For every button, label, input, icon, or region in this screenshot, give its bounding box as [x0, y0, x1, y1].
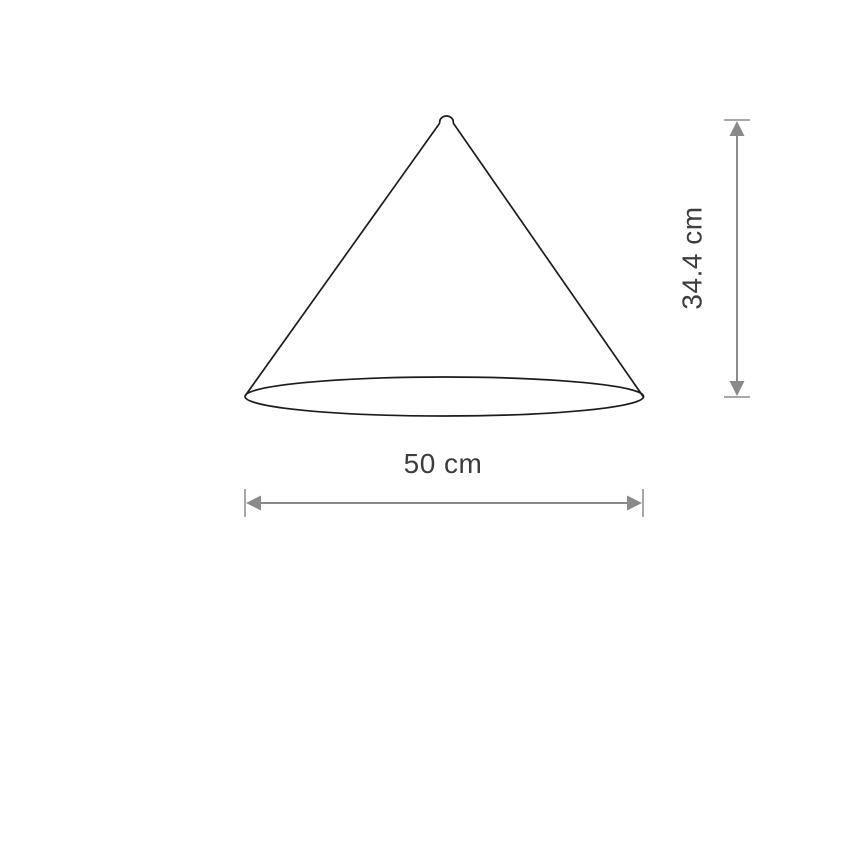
diagram-svg: 34.4 cm 50 cm [0, 0, 868, 868]
height-dimension-label: 34.4 cm [676, 206, 707, 309]
cone-drawing [245, 116, 644, 416]
cone-right-edge [453, 123, 643, 397]
height-dimension-arrowhead-down [730, 381, 745, 396]
width-dimension: 50 cm [245, 448, 643, 517]
cone-top-cap [440, 116, 454, 123]
height-dimension-arrowhead-up [730, 121, 745, 136]
height-dimension: 34.4 cm [676, 120, 750, 397]
width-dimension-label: 50 cm [404, 448, 483, 479]
cone-left-edge [245, 123, 440, 396]
cone-base-ellipse [245, 377, 644, 416]
width-dimension-arrowhead-left [246, 496, 261, 511]
width-dimension-arrowhead-right [627, 496, 642, 511]
dimension-diagram: 34.4 cm 50 cm [0, 0, 868, 868]
